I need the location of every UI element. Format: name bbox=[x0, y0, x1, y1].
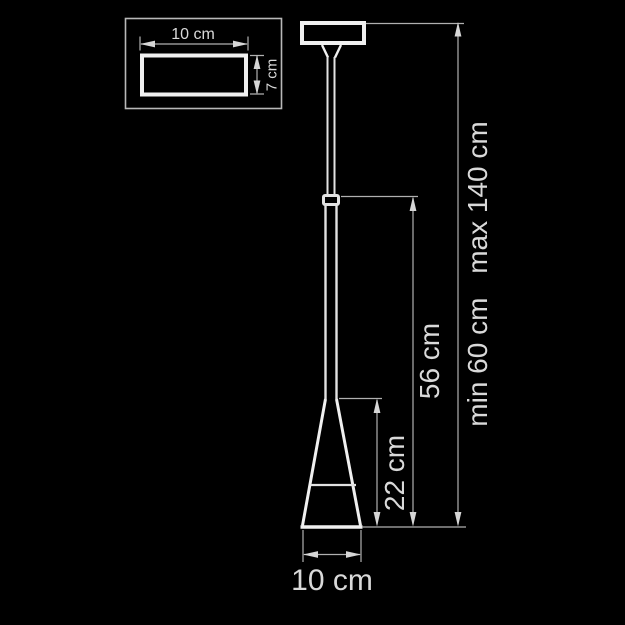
suspension-max-label: max 140 cm bbox=[462, 121, 493, 274]
cord-connector bbox=[324, 196, 339, 205]
shade-height-label: 22 cm bbox=[381, 435, 409, 511]
cord-upper bbox=[328, 57, 335, 195]
suspension-height-label: min 60 cm max 140 cm bbox=[464, 121, 492, 426]
cord-lower bbox=[326, 204, 337, 399]
suspension-min-label: min 60 cm bbox=[462, 298, 493, 427]
mount-plate-top-view bbox=[142, 56, 246, 95]
inset-width-label: 10 cm bbox=[171, 27, 215, 43]
drawing-linework bbox=[0, 0, 625, 625]
cord-grip bbox=[322, 45, 341, 58]
pendant-lamp bbox=[301, 23, 365, 527]
shade-width-label: 10 cm bbox=[291, 566, 373, 596]
ceiling-mount bbox=[302, 23, 364, 43]
inset-depth-label: 7 cm bbox=[265, 59, 280, 92]
shade-width-dimension bbox=[303, 530, 361, 562]
lamp-dimension-drawing: 10 cm 7 cm 22 cm 56 cm min 60 cm max 140… bbox=[0, 0, 625, 625]
inset-depth-dimension bbox=[250, 55, 264, 95]
cone-shade bbox=[303, 399, 361, 526]
shade-height-dimension bbox=[339, 399, 382, 527]
fixture-height-label: 56 cm bbox=[416, 323, 444, 399]
